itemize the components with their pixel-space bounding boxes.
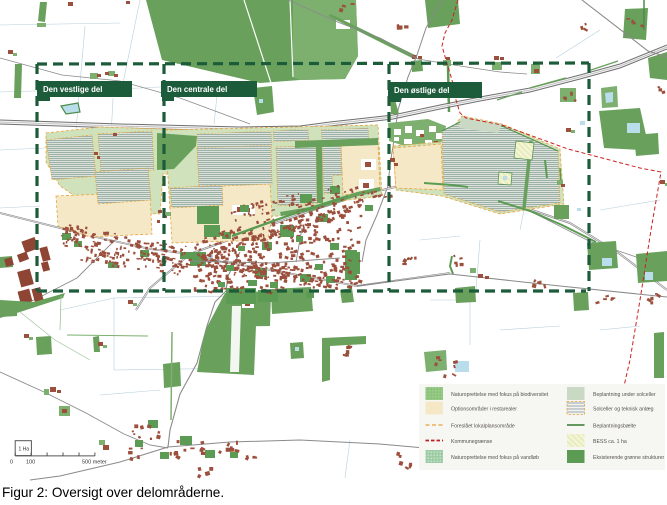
svg-text:Solceller og teknisk anlæg: Solceller og teknisk anlæg bbox=[593, 407, 654, 413]
svg-text:Den vestlige del: Den vestlige del bbox=[43, 85, 102, 94]
svg-text:Naturoprettelse med fokus på v: Naturoprettelse med fokus på vandløb bbox=[451, 454, 539, 461]
svg-text:Den centrale del: Den centrale del bbox=[167, 85, 227, 94]
svg-text:500 meter: 500 meter bbox=[82, 460, 107, 466]
svg-text:Kommunegrænse: Kommunegrænse bbox=[451, 439, 492, 445]
svg-text:BESS ca. 1 ha: BESS ca. 1 ha bbox=[593, 439, 627, 445]
svg-text:Naturoprettelse med fokus på b: Naturoprettelse med fokus på biodiversit… bbox=[451, 391, 549, 398]
svg-text:100: 100 bbox=[26, 460, 35, 466]
svg-text:Eksisterende grønne strukturer: Eksisterende grønne strukturer bbox=[593, 455, 664, 461]
svg-text:1 Ha: 1 Ha bbox=[19, 447, 30, 453]
svg-text:Den østlige del: Den østlige del bbox=[394, 86, 449, 95]
svg-text:Figur 2: Oversigt over delområ: Figur 2: Oversigt over delområderne. bbox=[2, 485, 224, 500]
svg-text:Beplantningsbælte: Beplantningsbælte bbox=[593, 424, 636, 430]
svg-text:Foreslået lokalplansområde: Foreslået lokalplansområde bbox=[451, 423, 515, 430]
svg-text:Beplantning under solceller: Beplantning under solceller bbox=[593, 392, 656, 398]
svg-text:Optionsområder i restarealer: Optionsområder i restarealer bbox=[451, 406, 517, 413]
svg-text:0: 0 bbox=[10, 460, 13, 466]
